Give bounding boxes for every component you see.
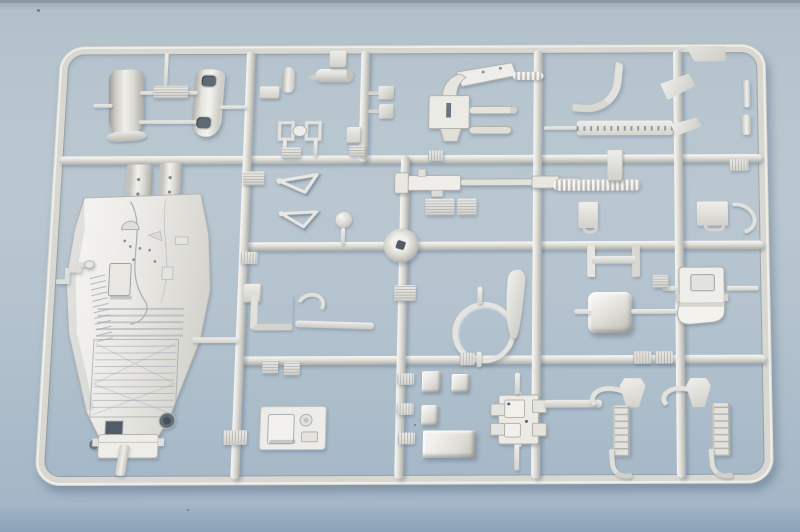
vent-plate — [457, 199, 477, 216]
gate-bar — [544, 126, 577, 130]
foot-bracket — [260, 86, 281, 99]
vent-plate — [653, 275, 669, 288]
vent-plate — [425, 199, 454, 216]
torque-link — [274, 207, 322, 232]
number-tag — [460, 353, 475, 366]
number-tag — [397, 403, 414, 415]
number-tag — [397, 373, 414, 385]
gate-bar — [515, 373, 520, 394]
gate-crank — [56, 260, 95, 287]
number-tag — [398, 433, 415, 445]
gate-bar — [631, 309, 676, 314]
gate-bar — [574, 309, 590, 314]
vent-plate — [284, 362, 300, 376]
gate-bar — [139, 120, 197, 124]
gate-bar — [93, 104, 112, 108]
pin-block — [368, 104, 393, 119]
edge-pin — [743, 80, 750, 107]
vent-plate — [243, 171, 265, 185]
h-frame — [587, 245, 640, 277]
equipment-box — [588, 292, 632, 333]
torque-link — [274, 172, 323, 199]
photo-stage — [0, 0, 800, 532]
ribbed-rod — [513, 72, 544, 80]
gate-plate — [153, 86, 188, 99]
bucket-seat — [675, 265, 729, 326]
foot-bracket — [607, 150, 623, 181]
gate-bar — [477, 287, 482, 304]
table-front-edge — [0, 503, 800, 532]
cockpit-hull — [54, 181, 217, 460]
intake-cowl-left — [109, 69, 144, 138]
vent-plate — [262, 360, 278, 374]
dust-speck — [37, 9, 40, 12]
ribbed-belt-rod — [553, 179, 640, 190]
number-tag — [633, 351, 651, 364]
gate-bar — [192, 337, 238, 343]
gate-bar — [477, 352, 482, 367]
number-tag — [428, 151, 444, 161]
mount-plate — [490, 392, 546, 447]
louvered-strip — [577, 120, 673, 135]
sprue — [34, 44, 774, 486]
small-box — [422, 371, 441, 392]
gate-bar — [727, 286, 758, 291]
twin-frame-bracket — [277, 120, 322, 142]
vent-plate — [281, 147, 301, 158]
gate-bar — [220, 105, 247, 109]
rect-tray — [422, 430, 475, 458]
small-box — [451, 374, 469, 392]
dust-speck — [187, 509, 189, 511]
small-bracket — [346, 127, 361, 144]
cylinder-pod — [315, 69, 354, 83]
gun-mount-assembly — [426, 61, 519, 143]
vent-plate — [349, 145, 365, 156]
number-tag — [241, 252, 258, 264]
hinge-bracket — [578, 202, 597, 228]
pod-bracket — [329, 51, 347, 68]
background-top-edge — [0, 0, 800, 3]
gate-bar — [313, 140, 317, 157]
edge-pin — [742, 115, 751, 135]
l-bracket — [250, 295, 293, 330]
number-tag — [655, 351, 673, 364]
number-tag — [729, 159, 749, 171]
winch-panel — [257, 403, 328, 454]
small-box — [421, 405, 438, 426]
small-cylinder — [282, 67, 295, 92]
pin-block — [368, 86, 394, 100]
number-tag — [223, 430, 247, 445]
gate-bar — [341, 228, 345, 245]
vent-plate — [394, 285, 416, 301]
gate-bar — [514, 445, 519, 471]
